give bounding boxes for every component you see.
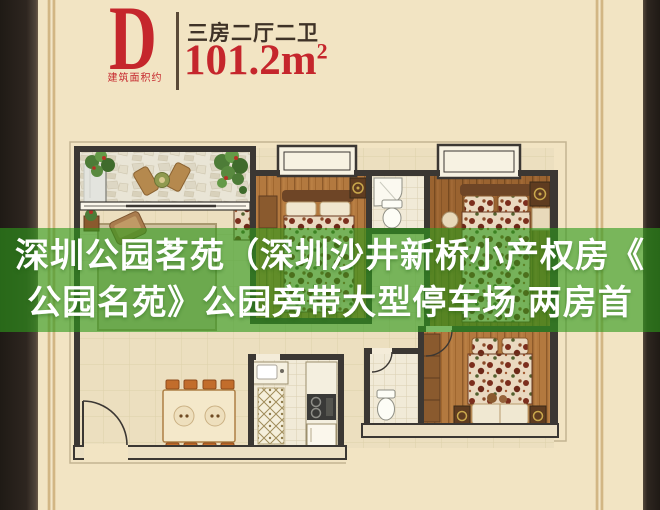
toilet-icon: [377, 390, 395, 420]
nightstand-icon: [530, 182, 550, 206]
dining-set-icon: [163, 380, 235, 452]
bathroom-1: [372, 176, 424, 228]
toilet-icon: [382, 200, 402, 228]
kitchen-runner-icon: [258, 388, 284, 444]
watermark-line-1: 深圳公园茗苑（深圳沙井新桥小产权房《: [15, 233, 645, 280]
stool-icon: [442, 212, 458, 228]
stove-icon: [307, 394, 336, 420]
bay-window: [278, 146, 356, 176]
fridge-icon: [307, 424, 336, 446]
balcony-window: [80, 202, 250, 210]
dresser-icon: [259, 196, 277, 228]
kitchen-door: [256, 354, 280, 360]
bedroom-3: [422, 332, 550, 426]
wardrobe-icon: [422, 334, 440, 422]
bathroom-2: [370, 354, 418, 426]
page-root: D 建筑面积约 三房二厅二卫 101.2m2: [0, 0, 660, 510]
balcony: [80, 149, 250, 203]
watermark-overlay: 深圳公园茗苑（深圳沙井新桥小产权房《 公园名苑》公园旁带大型停车场 两房首: [0, 228, 660, 332]
watermark-line-2: 公园名苑》公园旁带大型停车场 两房首: [27, 280, 632, 327]
bay-window: [438, 145, 520, 178]
sink-icon: [252, 362, 288, 384]
kitchen: [252, 360, 338, 448]
dresser-icon: [532, 208, 550, 230]
nightstand-icon: [350, 178, 366, 198]
